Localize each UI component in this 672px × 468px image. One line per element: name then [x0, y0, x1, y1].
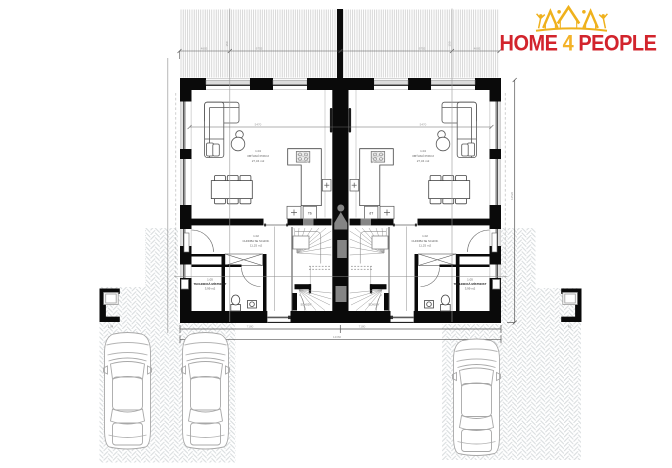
svg-text:TECHNICKÁ MÍSTNOST: TECHNICKÁ MÍSTNOST [454, 281, 487, 286]
svg-text:4605: 4605 [201, 47, 208, 51]
svg-text:150: 150 [447, 41, 451, 46]
svg-text:9755: 9755 [256, 47, 263, 51]
svg-text:TECHNICKÁ MÍSTNOST: TECHNICKÁ MÍSTNOST [194, 281, 227, 286]
svg-text:27,34 m2: 27,34 m2 [252, 159, 265, 163]
svg-text:SCHODY: SCHODY [300, 303, 311, 307]
svg-text:1.02: 1.02 [253, 234, 259, 238]
svg-text:9755: 9755 [419, 47, 426, 51]
svg-text:7180: 7180 [359, 325, 366, 329]
svg-text:3,99 m2: 3,99 m2 [465, 287, 476, 291]
svg-text:1.09: 1.09 [108, 325, 114, 329]
svg-text:5470: 5470 [255, 123, 262, 127]
svg-text:SCHODY: SCHODY [368, 303, 379, 307]
svg-text:OBÝVACÍ POKOJ: OBÝVACÍ POKOJ [412, 154, 434, 158]
svg-text:4605: 4605 [474, 47, 481, 51]
svg-text:P.L.: P.L. [568, 325, 573, 329]
svg-text:12520: 12520 [510, 191, 514, 200]
svg-text:1.05: 1.05 [207, 278, 213, 282]
svg-text:11,25 m2: 11,25 m2 [250, 244, 263, 248]
svg-text:CHODBA SE SCHOD.: CHODBA SE SCHOD. [412, 239, 439, 243]
svg-text:3,99 m2: 3,99 m2 [205, 287, 216, 291]
svg-text:Tb: Tb [308, 212, 312, 216]
svg-text:CHODBA SE SCHOD.: CHODBA SE SCHOD. [243, 239, 270, 243]
svg-text:5470: 5470 [420, 123, 427, 127]
svg-text:1.04: 1.04 [420, 149, 426, 153]
svg-text:150: 150 [225, 41, 229, 46]
svg-text:OBÝVACÍ POKOJ: OBÝVACÍ POKOJ [247, 154, 269, 158]
svg-text:11,25 m2: 11,25 m2 [419, 244, 432, 248]
svg-text:7180: 7180 [247, 325, 254, 329]
svg-text:1.02: 1.02 [422, 234, 428, 238]
svg-text:14360: 14360 [333, 335, 342, 339]
svg-text:27,34 m2: 27,34 m2 [417, 159, 430, 163]
svg-text:1.04: 1.04 [255, 149, 261, 153]
svg-text:HOME 4 PEOPLE: HOME 4 PEOPLE [500, 31, 657, 56]
svg-text:1.05: 1.05 [467, 278, 473, 282]
